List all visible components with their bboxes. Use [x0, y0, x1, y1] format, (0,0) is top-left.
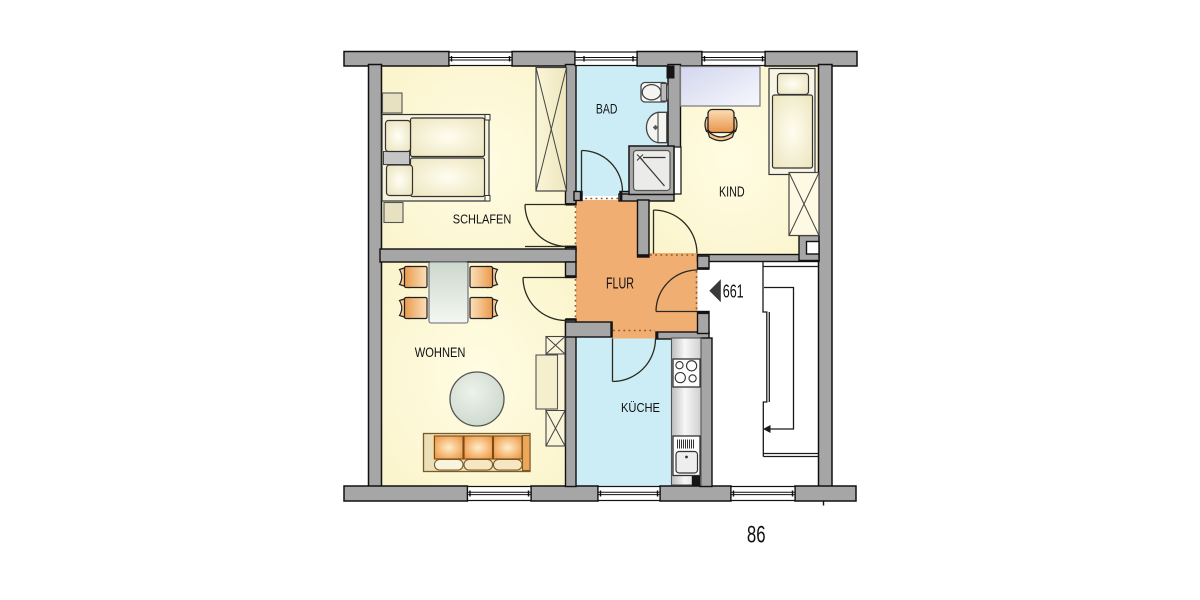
svg-text:BAD: BAD	[596, 102, 618, 117]
svg-text:FLUR: FLUR	[606, 276, 634, 293]
svg-text:86: 86	[747, 521, 766, 548]
svg-text:KIND: KIND	[719, 184, 745, 201]
svg-text:SCHLAFEN: SCHLAFEN	[453, 212, 512, 227]
svg-text:WOHNEN: WOHNEN	[415, 344, 466, 360]
svg-text:KÜCHE: KÜCHE	[621, 400, 660, 415]
svg-text:661: 661	[723, 281, 744, 301]
